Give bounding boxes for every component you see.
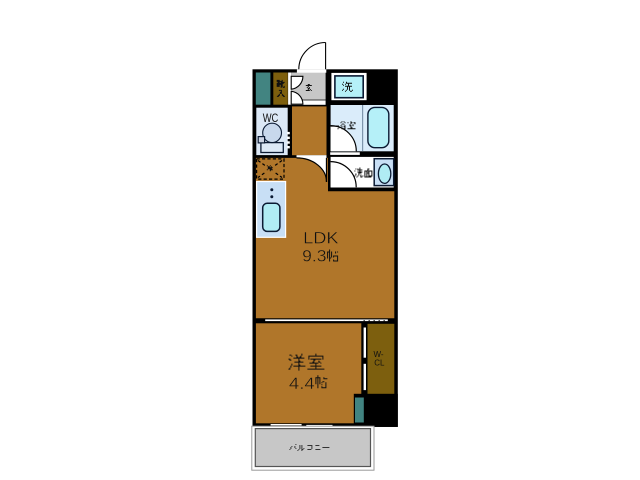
svg-text:9.3: 9.3: [302, 246, 326, 265]
svg-text:W-: W-: [374, 350, 384, 359]
svg-text:WC: WC: [263, 113, 279, 125]
svg-text:LDK: LDK: [303, 229, 339, 248]
svg-text:4.4: 4.4: [289, 374, 315, 393]
svg-text:CL: CL: [374, 359, 385, 368]
